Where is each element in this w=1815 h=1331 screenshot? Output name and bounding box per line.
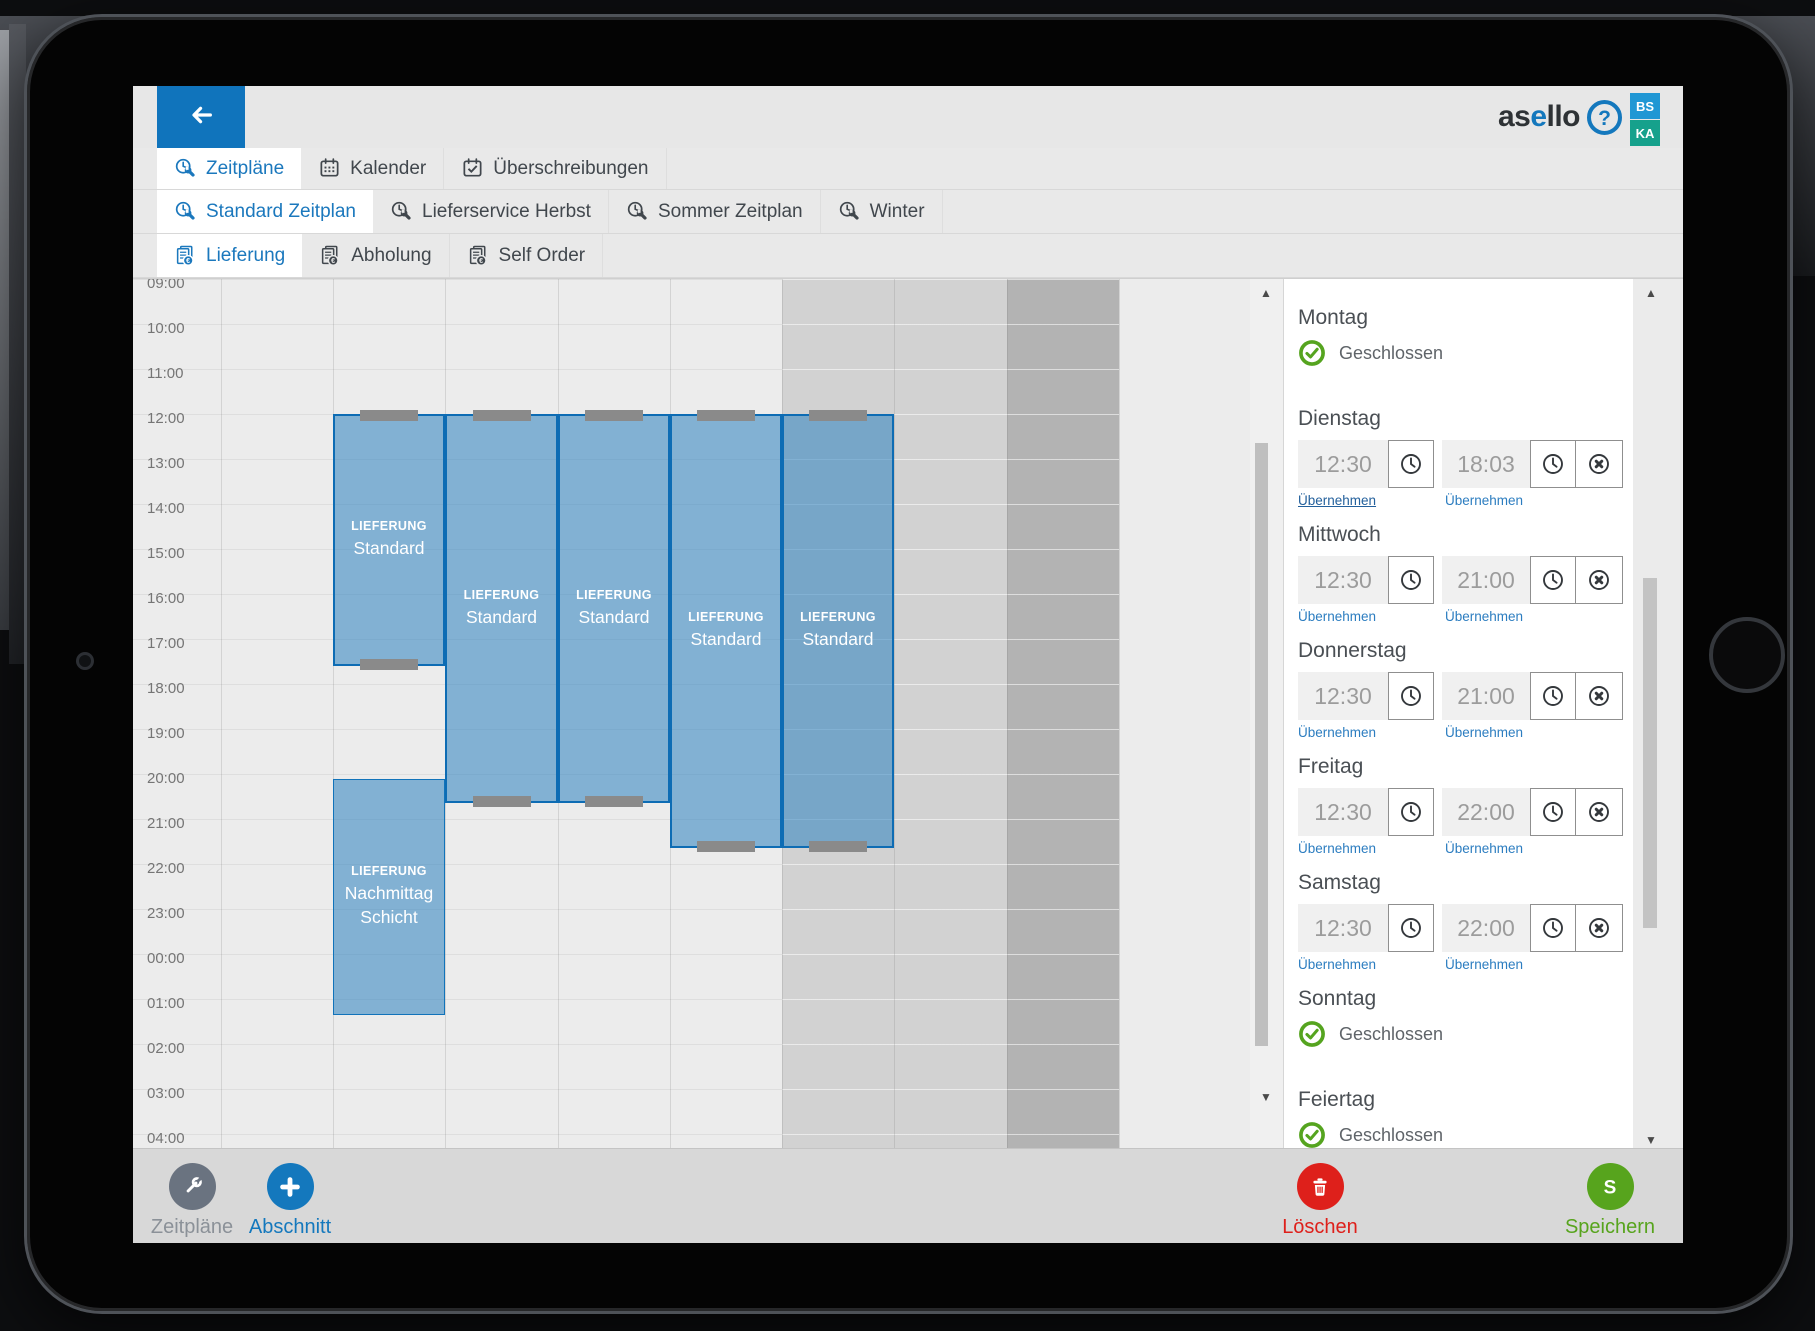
hour-line <box>133 1089 782 1090</box>
time-label: 10:00 <box>147 320 185 337</box>
closed-label: Geschlossen <box>1339 343 1443 364</box>
close-time-field[interactable]: 21:00 <box>1442 556 1530 604</box>
day-heading: Freitag <box>1298 755 1633 779</box>
svg-text:?: ? <box>1598 107 1611 130</box>
clock-picker-button[interactable] <box>1388 440 1434 488</box>
time-label: 01:00 <box>147 995 185 1012</box>
hour-line <box>133 954 782 955</box>
clock-wrench-icon <box>626 200 649 223</box>
clock-picker-button[interactable] <box>1530 440 1576 488</box>
apply-links: ÜbernehmenÜbernehmen <box>1298 841 1633 859</box>
scroll-up-icon[interactable]: ▲ <box>1643 287 1659 299</box>
view-tabs: Zeitpläne Kalender Überschreibungen <box>133 148 1683 190</box>
hour-line <box>133 909 782 910</box>
background-stripe <box>0 30 9 630</box>
apply-close-link[interactable]: Übernehmen <box>1445 493 1523 508</box>
clock-wrench-icon <box>390 200 413 223</box>
column-line <box>1119 279 1120 1148</box>
scroll-down-icon[interactable]: ▼ <box>1258 1091 1274 1103</box>
hour-line <box>133 1044 782 1045</box>
day-heading: Feiertag <box>1298 1088 1633 1112</box>
block-name: Standard <box>574 606 653 630</box>
closed-day-column-sonntag <box>894 279 1007 1148</box>
block-category: LIEFERUNG <box>351 864 427 878</box>
service-tabs: €Lieferung €Abholung €Self Order <box>133 234 1683 278</box>
close-time-field[interactable]: 22:00 <box>1442 904 1530 952</box>
button-label: Abschnitt <box>249 1216 331 1239</box>
tab-winter[interactable]: Winter <box>821 190 943 233</box>
day-heading: Montag <box>1298 306 1633 330</box>
check-circle-icon <box>1298 1020 1326 1048</box>
apply-open-link[interactable]: Übernehmen <box>1298 841 1376 856</box>
footer-bar: ZeitpläneAbschnitt LöschenSSpeichern <box>133 1148 1683 1243</box>
resize-handle-top[interactable] <box>360 410 418 421</box>
tab-label: Lieferung <box>206 245 285 267</box>
tab-self-order[interactable]: €Self Order <box>450 234 604 277</box>
hour-line <box>133 999 782 1000</box>
time-label: 02:00 <box>147 1040 185 1057</box>
block-category: LIEFERUNG <box>464 588 540 602</box>
block-name: Standard <box>349 537 428 561</box>
speichern-button[interactable]: SSpeichern <box>1540 1163 1680 1239</box>
apply-open-link[interactable]: Übernehmen <box>1298 493 1376 508</box>
apply-open-link[interactable]: Übernehmen <box>1298 609 1376 624</box>
time-label: 12:00 <box>147 410 185 427</box>
doc-euro-icon: € <box>319 244 342 267</box>
calendar-check-icon <box>461 157 484 180</box>
block-category: LIEFERUNG <box>688 610 764 624</box>
time-range-row: 12:30 21:00 <box>1298 672 1633 720</box>
tab-lieferservice-herbst[interactable]: Lieferservice Herbst <box>373 190 609 233</box>
calendar-icon <box>318 157 341 180</box>
hour-line <box>133 369 782 370</box>
column-line <box>333 279 334 1148</box>
clear-time-button[interactable] <box>1575 788 1623 836</box>
hour-line <box>133 864 782 865</box>
resize-handle-bottom[interactable] <box>585 796 643 807</box>
apply-close-link[interactable]: Übernehmen <box>1445 957 1523 972</box>
column-line <box>221 279 222 1148</box>
resize-handle-top[interactable] <box>585 410 643 421</box>
hour-line <box>133 1134 782 1135</box>
clock-picker-button[interactable] <box>1530 904 1576 952</box>
arrow-left-icon <box>187 101 215 134</box>
resize-handle-top[interactable] <box>809 410 867 421</box>
time-range-row: 12:30 22:00 <box>1298 904 1633 952</box>
open-time-field[interactable]: 12:30 <box>1298 556 1388 604</box>
day-section-dienstag: Dienstag12:30 18:03 ÜbernehmenÜbernehmen <box>1298 407 1633 511</box>
schedule-block-standard-freitag[interactable]: LIEFERUNGStandard <box>670 414 782 848</box>
resize-handle-top[interactable] <box>473 410 531 421</box>
doc-euro-icon: € <box>174 244 197 267</box>
page: asello ? BSKA Zeitpläne Kalender Übersch… <box>0 0 1815 1331</box>
open-time-field[interactable]: 12:30 <box>1298 672 1388 720</box>
apply-links: ÜbernehmenÜbernehmen <box>1298 493 1633 511</box>
resize-handle-bottom[interactable] <box>697 841 755 852</box>
closed-day-column-feiertag <box>1007 279 1119 1148</box>
löschen-button[interactable]: Löschen <box>1250 1163 1390 1239</box>
button-label: Löschen <box>1282 1216 1358 1239</box>
button-label: Speichern <box>1565 1216 1655 1239</box>
column-line <box>894 279 895 1148</box>
tab-label: Lieferservice Herbst <box>422 201 591 223</box>
apply-open-link[interactable]: Übernehmen <box>1298 725 1376 740</box>
closed-status: Geschlossen <box>1298 1020 1633 1048</box>
block-category: LIEFERUNG <box>576 588 652 602</box>
tab-abholung[interactable]: €Abholung <box>302 234 449 277</box>
day-section-mittwoch: Mittwoch12:30 21:00 ÜbernehmenÜbernehmen <box>1298 523 1633 627</box>
clear-time-button[interactable] <box>1575 556 1623 604</box>
time-label: 22:00 <box>147 860 185 877</box>
svg-text:S: S <box>1604 1177 1617 1198</box>
resize-handle-bottom[interactable] <box>360 659 418 670</box>
tab-label: Winter <box>870 201 925 223</box>
clock-picker-button[interactable] <box>1388 904 1434 952</box>
badge-bs[interactable]: BS <box>1630 93 1660 119</box>
panel-scrollbar-area: ▲ ▼ <box>1633 279 1683 1148</box>
home-button[interactable] <box>1709 617 1785 693</box>
day-heading: Donnerstag <box>1298 639 1633 663</box>
clock-wrench-icon <box>174 157 197 180</box>
open-time-field[interactable]: 12:30 <box>1298 440 1388 488</box>
day-heading: Mittwoch <box>1298 523 1633 547</box>
tab-label: Kalender <box>350 158 426 180</box>
scroll-down-icon[interactable]: ▼ <box>1643 1134 1659 1146</box>
plus-icon <box>267 1163 314 1210</box>
apply-open-link[interactable]: Übernehmen <box>1298 957 1376 972</box>
schedule-block-standard-samstag[interactable]: LIEFERUNGStandard <box>782 414 894 848</box>
closed-label: Geschlossen <box>1339 1024 1443 1045</box>
tab-label: Standard Zeitplan <box>206 201 356 223</box>
time-label: 18:00 <box>147 680 185 697</box>
time-label: 19:00 <box>147 725 185 742</box>
day-section-sonntag: Sonntag Geschlossen <box>1298 987 1633 1048</box>
time-label: 23:00 <box>147 905 185 922</box>
time-label: 13:00 <box>147 455 185 472</box>
apply-close-link[interactable]: Übernehmen <box>1445 609 1523 624</box>
tab-sommer-zeitplan[interactable]: Sommer Zeitplan <box>609 190 821 233</box>
time-label: 17:00 <box>147 635 185 652</box>
clock-wrench-icon <box>838 200 861 223</box>
tab-label: Sommer Zeitplan <box>658 201 803 223</box>
time-label: 04:00 <box>147 1130 185 1147</box>
close-time-field[interactable]: 18:03 <box>1442 440 1530 488</box>
tab-überschreibungen[interactable]: Überschreibungen <box>444 148 666 189</box>
time-label: 00:00 <box>147 950 185 967</box>
schedule-block-standard-dienstag[interactable]: LIEFERUNGStandard <box>333 414 445 666</box>
header-bar: asello ? BSKA <box>133 86 1683 148</box>
day-heading: Sonntag <box>1298 987 1633 1011</box>
abschnitt-button[interactable]: Abschnitt <box>220 1163 360 1239</box>
clock-wrench-icon <box>174 200 197 223</box>
day-section-freitag: Freitag12:30 22:00 ÜbernehmenÜbernehmen <box>1298 755 1633 859</box>
panel-scrollbar-thumb[interactable] <box>1643 578 1657 928</box>
tab-lieferung[interactable]: €Lieferung <box>157 234 302 277</box>
svg-text:€: € <box>186 257 190 265</box>
open-time-field[interactable]: 12:30 <box>1298 788 1388 836</box>
closed-status: Geschlossen <box>1298 1121 1633 1148</box>
tab-label: Zeitpläne <box>206 158 284 180</box>
check-circle-icon <box>1298 339 1326 367</box>
day-section-feiertag: Feiertag Geschlossen <box>1298 1088 1633 1148</box>
time-label: 21:00 <box>147 815 185 832</box>
back-button[interactable] <box>157 86 245 148</box>
day-section-donnerstag: Donnerstag12:30 21:00 ÜbernehmenÜbernehm… <box>1298 639 1633 743</box>
svg-text:€: € <box>479 257 483 265</box>
open-time-field[interactable]: 12:30 <box>1298 904 1388 952</box>
tab-label: Abholung <box>351 245 431 267</box>
time-label: 14:00 <box>147 500 185 517</box>
grid-scrollbar-thumb[interactable] <box>1255 443 1268 1046</box>
scroll-up-icon[interactable]: ▲ <box>1258 287 1274 299</box>
tab-label: Überschreibungen <box>493 158 648 180</box>
clock-picker-button[interactable] <box>1388 556 1434 604</box>
clock-picker-button[interactable] <box>1530 556 1576 604</box>
check-circle-icon <box>1298 1121 1326 1148</box>
column-line <box>1007 279 1008 1148</box>
schedule-block-standard-donnerstag[interactable]: LIEFERUNGStandard <box>558 414 670 803</box>
time-label: 20:00 <box>147 770 185 787</box>
badge-ka[interactable]: KA <box>1630 120 1660 146</box>
clock-picker-button[interactable] <box>1530 672 1576 720</box>
resize-handle-top[interactable] <box>697 410 755 421</box>
block-name: Standard <box>686 628 765 652</box>
day-section-montag: Montag Geschlossen <box>1298 306 1633 367</box>
doc-euro-icon: € <box>467 244 490 267</box>
time-range-row: 12:30 21:00 <box>1298 556 1633 604</box>
camera-dot <box>79 655 91 667</box>
block-category: LIEFERUNG <box>351 519 427 533</box>
tab-kalender[interactable]: Kalender <box>301 148 444 189</box>
resize-handle-bottom[interactable] <box>473 796 531 807</box>
clock-picker-button[interactable] <box>1388 672 1434 720</box>
day-section-samstag: Samstag12:30 22:00 ÜbernehmenÜbernehmen <box>1298 871 1633 975</box>
clear-time-button[interactable] <box>1575 440 1623 488</box>
block-name: Standard <box>462 606 541 630</box>
schedule-tabs: Standard Zeitplan Lieferservice Herbst S… <box>133 190 1683 234</box>
hour-line <box>133 279 782 280</box>
block-name: Standard <box>798 628 877 652</box>
schedule-block-standard-mittwoch[interactable]: LIEFERUNGStandard <box>445 414 558 803</box>
asello-logo: asello <box>1498 86 1580 148</box>
closed-label: Geschlossen <box>1339 1125 1443 1146</box>
clear-time-button[interactable] <box>1575 904 1623 952</box>
svg-text:€: € <box>331 257 335 265</box>
tab-standard-zeitplan[interactable]: Standard Zeitplan <box>157 190 373 233</box>
time-label: 03:00 <box>147 1085 185 1102</box>
user-badges: BSKA <box>1630 93 1660 146</box>
apply-links: ÜbernehmenÜbernehmen <box>1298 725 1633 743</box>
day-heading: Dienstag <box>1298 407 1633 431</box>
time-label: 09:00 <box>147 279 185 292</box>
time-label: 11:00 <box>147 365 183 382</box>
block-name: Nachmittag Schicht <box>334 882 444 929</box>
clock-picker-button[interactable] <box>1530 788 1576 836</box>
apply-close-link[interactable]: Übernehmen <box>1445 841 1523 856</box>
block-category: LIEFERUNG <box>800 610 876 624</box>
close-time-field[interactable]: 22:00 <box>1442 788 1530 836</box>
apply-links: ÜbernehmenÜbernehmen <box>1298 957 1633 975</box>
closed-status: Geschlossen <box>1298 339 1633 367</box>
schedule-grid[interactable]: 09:0010:0011:0012:0013:0014:0015:0016:00… <box>133 279 1283 1148</box>
time-label: 15:00 <box>147 545 185 562</box>
time-range-row: 12:30 18:03 <box>1298 440 1633 488</box>
trash-icon <box>1297 1163 1344 1210</box>
letter-s-icon: S <box>1587 1163 1634 1210</box>
resize-handle-bottom[interactable] <box>809 841 867 852</box>
time-label: 16:00 <box>147 590 185 607</box>
apply-links: ÜbernehmenÜbernehmen <box>1298 609 1633 627</box>
wrench-icon <box>169 1163 216 1210</box>
close-time-field[interactable]: 21:00 <box>1442 672 1530 720</box>
clear-time-button[interactable] <box>1575 672 1623 720</box>
time-range-row: 12:30 22:00 <box>1298 788 1633 836</box>
opening-hours-panel: Montag GeschlossenDienstag12:30 18:03 Üb… <box>1283 279 1633 1148</box>
tab-zeitpläne[interactable]: Zeitpläne <box>157 148 301 189</box>
app-screen: asello ? BSKA Zeitpläne Kalender Übersch… <box>133 86 1683 1243</box>
apply-close-link[interactable]: Übernehmen <box>1445 725 1523 740</box>
help-icon[interactable]: ? <box>1586 99 1623 136</box>
day-heading: Samstag <box>1298 871 1633 895</box>
schedule-block-nachmittag-schicht-dienstag[interactable]: LIEFERUNGNachmittag Schicht <box>333 779 445 1015</box>
clock-picker-button[interactable] <box>1388 788 1434 836</box>
hour-line <box>133 324 782 325</box>
tab-label: Self Order <box>499 245 586 267</box>
